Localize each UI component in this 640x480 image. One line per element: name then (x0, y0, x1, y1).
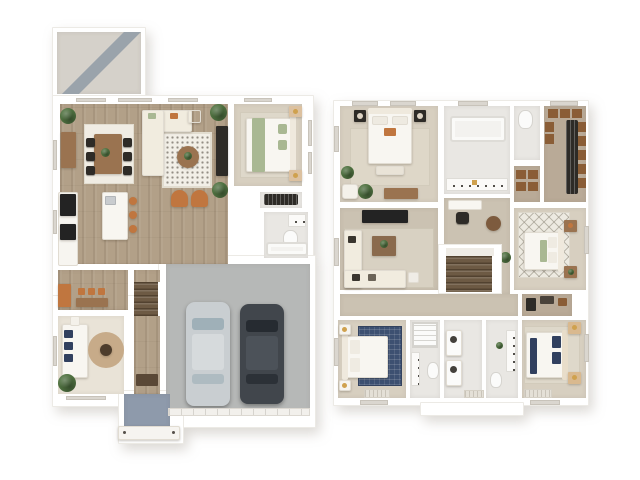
headboard (368, 108, 412, 114)
closet-shelf-box (578, 164, 586, 174)
staircase (446, 256, 494, 292)
bathtub (450, 116, 506, 142)
closet-shelf-box (528, 182, 538, 191)
window (360, 400, 388, 405)
door-mat (464, 390, 484, 398)
closet-bin (558, 298, 567, 306)
window (334, 238, 339, 266)
table-lamp (568, 223, 573, 228)
closet-shelf-box (548, 109, 558, 118)
second-floor-plan (0, 0, 640, 480)
bed-pillow (350, 358, 360, 372)
sofa-pillow (352, 274, 360, 281)
table-lamp (572, 375, 577, 380)
door-mat (524, 389, 552, 398)
stair-landing (446, 248, 494, 256)
plant (341, 166, 354, 179)
closet-shelf-box (545, 122, 554, 132)
shower (412, 322, 438, 348)
closet-shelf-box (516, 170, 526, 179)
desk-chair (456, 212, 469, 224)
toilet (518, 110, 533, 129)
hallway-floor (340, 294, 518, 316)
closet-shelf-box (545, 134, 554, 144)
armchair (342, 184, 358, 199)
washer (446, 330, 462, 356)
green-pillow (540, 240, 547, 262)
bed-pillow (548, 252, 557, 263)
desk (448, 200, 482, 210)
vanity-decor (472, 180, 477, 185)
closet-shelf-box (516, 182, 526, 191)
table-lamp (417, 113, 423, 119)
closet-shelf-box (560, 109, 570, 118)
window (334, 338, 339, 366)
vanity (411, 352, 420, 386)
window (458, 101, 488, 106)
bed-bench (376, 166, 404, 175)
navy-pillow (552, 336, 561, 348)
window (390, 101, 416, 106)
closet-bin (540, 296, 554, 304)
door-mat (364, 389, 390, 398)
dryer-door (450, 366, 457, 373)
second-floor-walls-bump (420, 402, 524, 416)
window (584, 334, 589, 362)
navy-pillow (552, 352, 561, 364)
toilet (490, 372, 502, 388)
closet-bin (526, 298, 536, 311)
closet-shelf-box (578, 136, 586, 146)
hanging-clothes (566, 120, 578, 194)
wood-console (384, 188, 418, 199)
plant (496, 342, 503, 349)
plant (568, 269, 574, 275)
closet-shelf-box (578, 150, 586, 160)
accent-pillow (384, 128, 396, 136)
dryer (446, 360, 462, 386)
coffee-table-plant (380, 240, 388, 248)
window (334, 126, 339, 152)
vanity (506, 330, 516, 372)
sofa-pillow (348, 236, 356, 243)
bed-pillow (548, 237, 557, 248)
closet-shelf-box (578, 178, 586, 188)
table-lamp (342, 383, 347, 388)
window (550, 101, 578, 106)
closet-shelf-box (572, 109, 582, 118)
pouf (486, 216, 501, 231)
closet-shelf-box (578, 122, 586, 132)
washer-door (450, 336, 457, 343)
round-side-table (408, 272, 419, 283)
table-lamp (342, 327, 347, 332)
table-lamp (572, 325, 577, 330)
closet-shelf-box (528, 170, 538, 179)
bed-pillow (372, 116, 388, 125)
floor-plan-image (0, 0, 640, 480)
navy-throw (530, 338, 537, 374)
double-vanity (446, 178, 508, 191)
bed-pillow (350, 340, 360, 354)
sofa-pillow (368, 274, 376, 281)
table-lamp (357, 113, 363, 119)
window (530, 400, 560, 405)
headboard (342, 334, 348, 380)
bed-pillow (392, 116, 408, 125)
window (352, 101, 378, 106)
window (584, 226, 589, 254)
plant (358, 184, 373, 199)
loft-media-console (362, 210, 408, 223)
toilet (427, 362, 439, 379)
